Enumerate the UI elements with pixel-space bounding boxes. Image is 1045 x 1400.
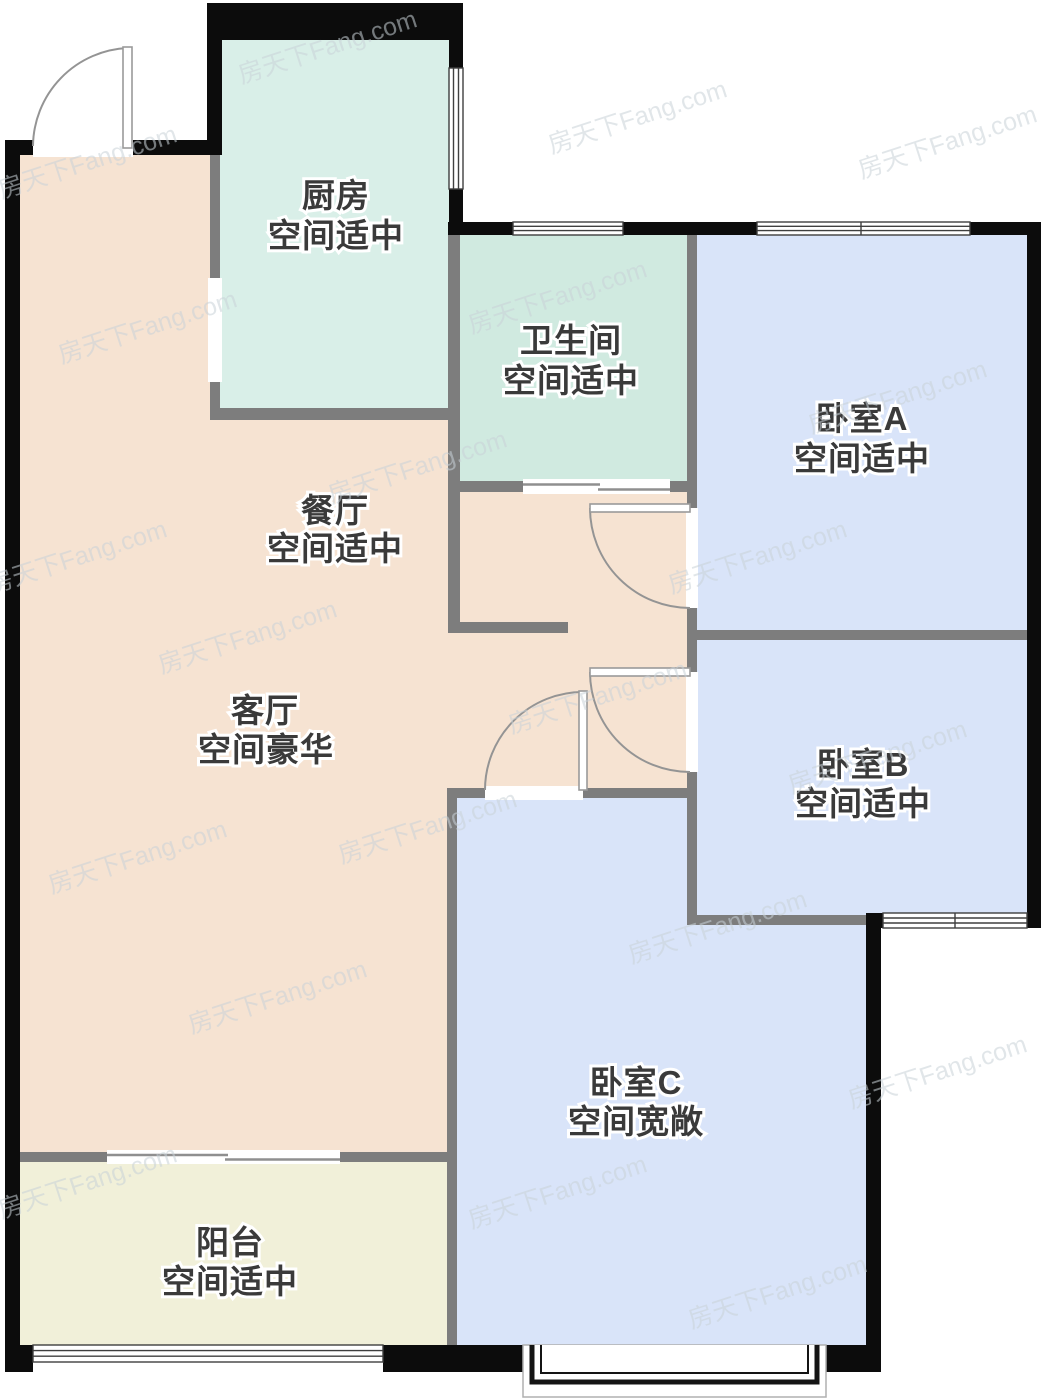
wall-hall-right-upper (687, 235, 697, 508)
bedroom-a-window (757, 222, 970, 235)
wall-south-right (826, 1345, 881, 1372)
wall-bedroom-a-b-divider (687, 630, 1027, 640)
opening-bedroom-b (686, 672, 698, 772)
balcony-label: 阳台 (196, 1224, 264, 1261)
bathroom-desc: 空间适中 (503, 362, 639, 399)
opening-bathroom (523, 479, 670, 494)
balcony-desc: 空间适中 (162, 1263, 298, 1300)
living-label: 客厅 (231, 692, 299, 729)
bay-window (523, 1345, 826, 1397)
wall-kitchen-left-pillar (207, 3, 222, 155)
wall-north-seg1 (448, 222, 513, 235)
wall-bedroom-c-top-right (581, 788, 697, 798)
wall-bedroom-c-right (866, 925, 881, 1372)
bedroom-b-window (883, 913, 1027, 928)
wall-kitchen-left-upper (210, 155, 220, 280)
wall-bedroom-c-left (447, 788, 457, 1345)
wall-dining-divider (448, 622, 568, 633)
wall-north-seg2 (623, 222, 757, 235)
living-desc: 空间豪华 (198, 731, 334, 768)
watermark: 房天下Fang.com (545, 75, 731, 159)
balcony-window (33, 1345, 383, 1362)
watermark: 房天下Fang.com (855, 100, 1041, 184)
wall-south-mid (383, 1345, 523, 1372)
bathroom-label: 卫生间 (520, 322, 622, 359)
wall-kitchen-right-upper (449, 3, 463, 69)
entrance-door (33, 47, 132, 148)
wall-balcony-top-right (340, 1152, 448, 1162)
kitchen-label: 厨房 (302, 177, 370, 214)
dining-desc: 空间适中 (267, 530, 403, 567)
wall-kitchen-left-lower (210, 380, 220, 412)
wall-bathroom-bottom-left (448, 481, 525, 492)
bedroom-a-desc: 空间适中 (794, 440, 930, 477)
bathroom-window (513, 222, 623, 235)
wall-bathroom-left (448, 235, 460, 633)
wall-west (5, 140, 20, 1372)
wall-balcony-bottom-left (5, 1345, 33, 1372)
floor-plan: 厨房 空间适中 卫生间 空间适中 卧室A 空间适中 餐厅 空间适中 客厅 空间豪… (0, 0, 1045, 1400)
kitchen-window (449, 68, 463, 189)
wall-east (1027, 222, 1041, 928)
wall-balcony-top-left (20, 1152, 107, 1162)
floor-plan-page: 厨房 空间适中 卫生间 空间适中 卧室A 空间适中 餐厅 空间适中 客厅 空间豪… (0, 0, 1045, 1400)
bedroom-c-desc: 空间宽敞 (568, 1103, 704, 1140)
kitchen-desc: 空间适中 (268, 217, 404, 254)
wall-kitchen-bottom (210, 408, 450, 420)
bedroom-c-label: 卧室C (590, 1064, 683, 1101)
